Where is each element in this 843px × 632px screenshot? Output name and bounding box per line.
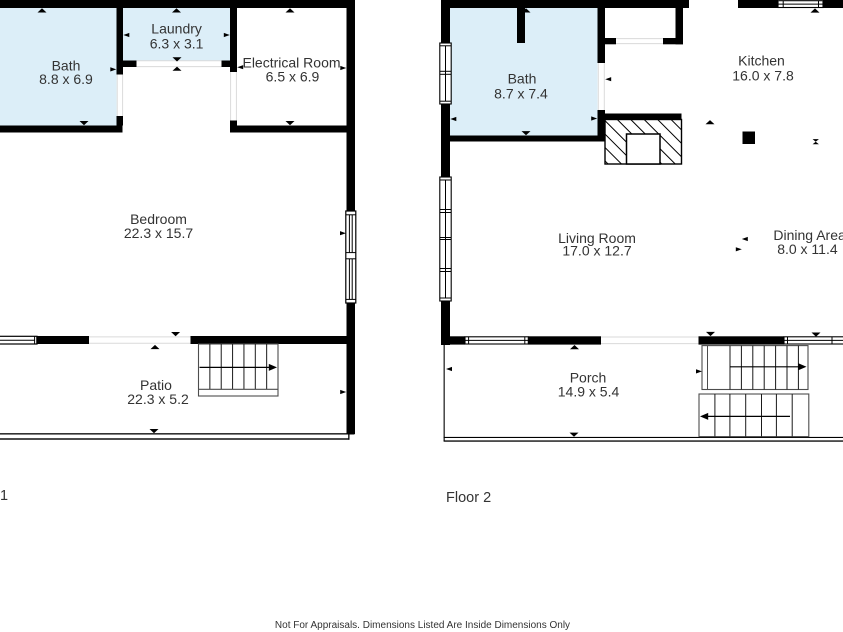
svg-text:8.8 x 6.9: 8.8 x 6.9 (39, 71, 93, 87)
svg-text:8.0 x 11.4: 8.0 x 11.4 (777, 241, 838, 257)
svg-text:6.3 x 3.1: 6.3 x 3.1 (150, 36, 204, 52)
svg-text:8.7 x 7.4: 8.7 x 7.4 (494, 86, 548, 102)
svg-text:22.3 x 5.2: 22.3 x 5.2 (127, 391, 189, 407)
svg-text:14.9 x 5.4: 14.9 x 5.4 (558, 383, 620, 399)
svg-text:Bath: Bath (508, 71, 537, 87)
svg-text:Not For Appraisals. Dimensions: Not For Appraisals. Dimensions Listed Ar… (275, 620, 570, 631)
svg-text:6.5 x 6.9: 6.5 x 6.9 (266, 69, 320, 85)
svg-text:1: 1 (0, 488, 8, 504)
svg-text:17.0 x 12.7: 17.0 x 12.7 (562, 243, 631, 259)
svg-text:22.3 x 15.7: 22.3 x 15.7 (124, 225, 193, 241)
svg-text:Laundry: Laundry (151, 21, 202, 37)
svg-text:16.0 x 7.8: 16.0 x 7.8 (732, 68, 794, 84)
svg-text:Kitchen: Kitchen (738, 53, 785, 69)
svg-text:Floor 2: Floor 2 (446, 490, 491, 506)
